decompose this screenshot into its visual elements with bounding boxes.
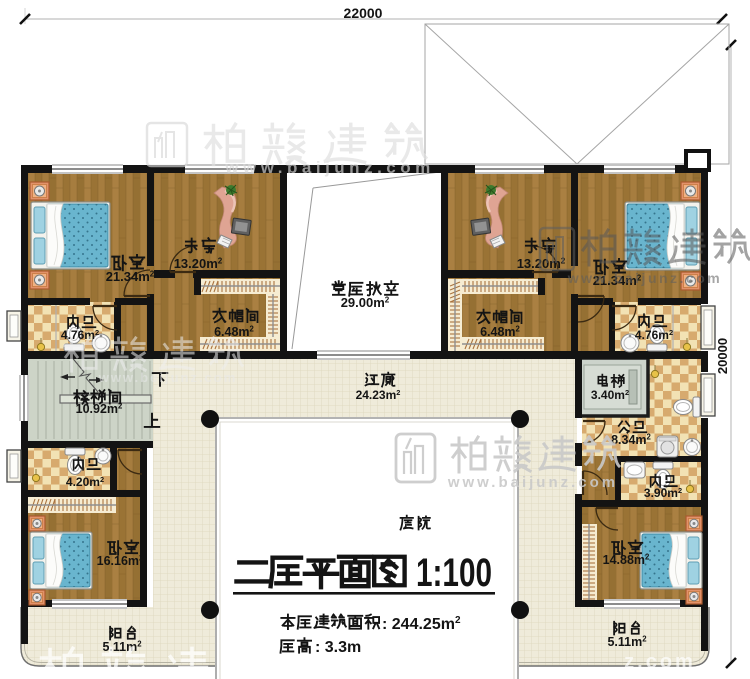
svg-text:1:100: 1:100 [416,551,492,595]
svg-text:3.40m2: 3.40m2 [591,388,629,402]
svg-text:www.baijunz.com: www.baijunz.com [447,474,618,491]
svg-text:16.16m2: 16.16m2 [97,554,144,568]
svg-text:5.11m2: 5.11m2 [607,635,647,649]
svg-text:: 244.25m2: : 244.25m2 [382,615,461,633]
svg-text:www.beijunz.com: www.beijunz.com [98,370,238,385]
svg-text:6.48m2: 6.48m2 [480,325,520,339]
svg-text:4.76m2: 4.76m2 [635,328,673,342]
svg-text:21.34m2: 21.34m2 [106,269,155,284]
svg-text:22000: 22000 [344,5,383,21]
svg-text:www.baijunz.com: www.baijunz.com [224,158,435,177]
svg-text:3.90m2: 3.90m2 [644,486,682,500]
svg-text:4.20m2: 4.20m2 [66,475,104,489]
svg-text:13.20m2: 13.20m2 [174,256,223,271]
svg-text:5.11m2: 5.11m2 [102,640,142,654]
svg-text:29.00m2: 29.00m2 [341,295,390,310]
svg-text:z.com: z.com [624,651,696,673]
svg-text:6.48m2: 6.48m2 [214,325,254,339]
svg-text:8.34m2: 8.34m2 [611,433,651,447]
svg-text:www.baijunz.com: www.baijunz.com [567,270,722,286]
svg-text:: 3.3m: : 3.3m [315,639,361,656]
svg-text:24.23m2: 24.23m2 [356,388,401,402]
svg-text:14.88m2: 14.88m2 [603,553,650,567]
svg-text:4.76m2: 4.76m2 [61,328,99,342]
svg-text:20000: 20000 [715,338,730,374]
svg-text:10.92m2: 10.92m2 [76,402,123,416]
